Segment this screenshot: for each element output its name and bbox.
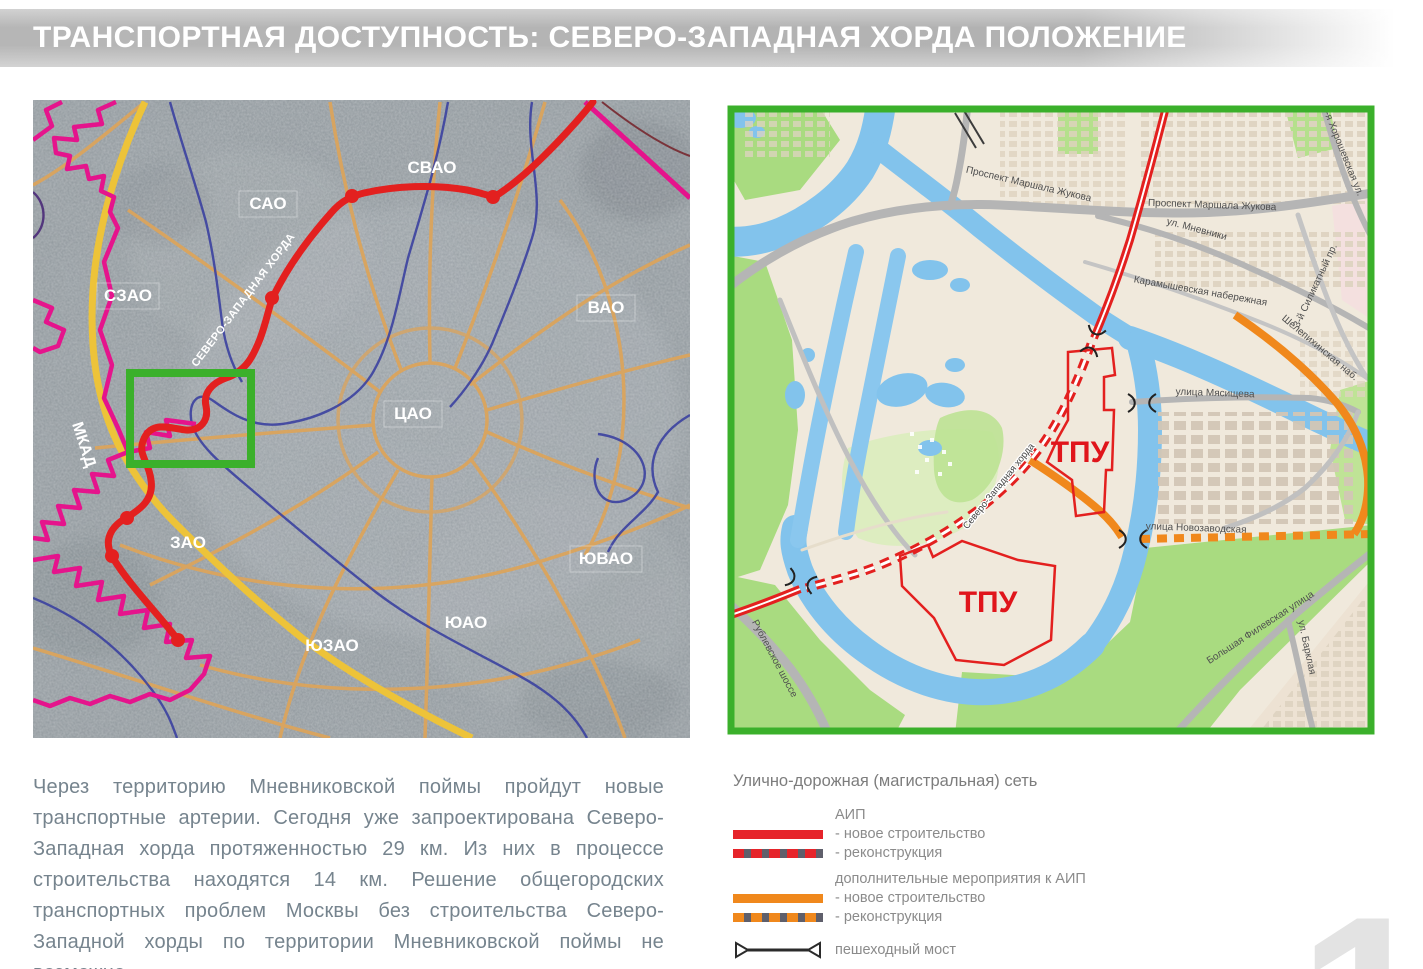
legend-row: - новое строительство: [733, 826, 1193, 842]
legend-row: - новое строительство: [733, 890, 1193, 906]
description-text: Через территорию Мневниковской поймы про…: [33, 772, 664, 969]
orange-dashed-swatch: [733, 913, 823, 922]
district-label: СВАО: [408, 158, 457, 177]
legend-item-label: пешеходный мост: [835, 942, 956, 958]
legend-row: - реконструкция: [733, 845, 1193, 861]
district-label: ВАО: [588, 298, 625, 317]
road-network-legend: Улично-дорожная (магистральная) сеть АИП…: [733, 772, 1193, 962]
red-solid-swatch: [733, 830, 823, 839]
district-label: СЗАО: [104, 286, 152, 305]
pedestrian-bridge-icon: [733, 941, 823, 959]
legend-item-label: - новое строительство: [835, 890, 985, 906]
legend-title: Улично-дорожная (магистральная) сеть: [733, 772, 1193, 791]
legend-group-heading: дополнительные мероприятия к АИП: [835, 871, 1193, 887]
floodplain-detail-map: Проспект Маршала Жукова Проспект Маршала…: [725, 103, 1375, 737]
district-label: САО: [249, 194, 286, 213]
legend-item-label: - реконструкция: [835, 909, 942, 925]
tpu-label: ТПУ: [1051, 436, 1110, 469]
legend-item-label: - реконструкция: [835, 845, 942, 861]
legend-row: пешеходный мост: [733, 941, 1193, 959]
district-label: ЮЗАО: [305, 636, 358, 655]
title-bar: ТРАНСПОРТНАЯ ДОСТУПНОСТЬ: СЕВЕРО-ЗАПАДНА…: [0, 9, 1423, 67]
legend-item-label: - новое строительство: [835, 826, 985, 842]
tpu-label: ТПУ: [959, 586, 1018, 619]
page-title: ТРАНСПОРТНАЯ ДОСТУПНОСТЬ: СЕВЕРО-ЗАПАДНА…: [33, 21, 1187, 55]
district-label: ЦАО: [394, 404, 432, 423]
district-label: ЗАО: [170, 533, 206, 552]
moscow-overview-map: СВАО САО СЗАО ВАО ЦАО ЗАО ЮЗАО ЮАО ЮВАО …: [33, 100, 690, 738]
legend-row: - реконструкция: [733, 909, 1193, 925]
orange-solid-swatch: [733, 894, 823, 903]
red-dashed-swatch: [733, 849, 823, 858]
district-label: ЮАО: [445, 613, 487, 632]
slide-page: ТРАНСПОРТНАЯ ДОСТУПНОСТЬ: СЕВЕРО-ЗАПАДНА…: [0, 0, 1423, 969]
legend-group-heading: АИП: [835, 807, 1193, 823]
district-label: ЮВАО: [579, 549, 633, 568]
page-number: 10: [1298, 880, 1423, 969]
